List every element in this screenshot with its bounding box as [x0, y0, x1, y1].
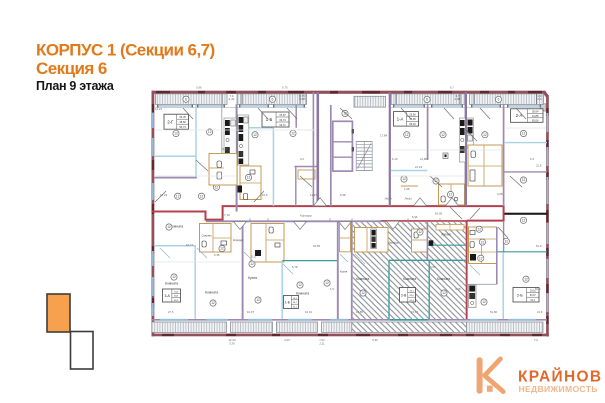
svg-text:Комната: Комната: [296, 292, 309, 296]
svg-text:Комната: Комната: [205, 291, 218, 295]
svg-text:1,98: 1,98: [404, 187, 410, 191]
svg-text:12: 12: [247, 176, 251, 180]
svg-text:12: 12: [482, 300, 486, 304]
svg-text:12: 12: [253, 133, 257, 137]
svg-text:12: 12: [441, 133, 445, 137]
svg-text:12: 12: [172, 275, 176, 279]
svg-text:12,23: 12,23: [155, 107, 162, 111]
svg-text:30,64: 30,64: [532, 109, 539, 113]
svg-text:5,96: 5,96: [412, 215, 418, 219]
svg-text:12: 12: [361, 291, 365, 295]
svg-text:12: 12: [402, 177, 406, 181]
svg-text:Кухня: Кухня: [442, 233, 451, 237]
svg-text:4,08: 4,08: [497, 192, 503, 196]
svg-text:2,41: 2,41: [229, 97, 235, 101]
svg-text:Комната: Комната: [356, 277, 369, 281]
svg-text:Лифт: Лифт: [385, 197, 393, 201]
svg-text:Лифт: Лифт: [405, 197, 413, 201]
svg-text:НЕДВИЖИМОСТЬ: НЕДВИЖИМОСТЬ: [519, 384, 598, 394]
svg-text:6,75: 6,75: [282, 86, 288, 90]
svg-text:52,9: 52,9: [535, 287, 541, 291]
svg-text:12: 12: [418, 230, 422, 234]
svg-text:12: 12: [250, 262, 254, 266]
svg-text:3,21: 3,21: [251, 255, 257, 259]
svg-text:15,41: 15,41: [411, 310, 418, 314]
svg-text:51,80: 51,80: [490, 310, 497, 314]
svg-text:Секция 6: Секция 6: [36, 59, 107, 78]
svg-text:6,10: 6,10: [392, 157, 398, 161]
svg-text:0,98: 0,98: [455, 97, 461, 101]
svg-text:12: 12: [200, 194, 204, 198]
svg-text:21,6: 21,6: [536, 164, 542, 168]
svg-text:1,5: 1,5: [330, 287, 334, 291]
svg-text:12: 12: [481, 240, 485, 244]
svg-text:12,23: 12,23: [160, 193, 167, 197]
svg-text:5,3: 5,3: [530, 157, 534, 161]
svg-text:27,5: 27,5: [168, 310, 174, 314]
svg-text:63,09: 63,09: [435, 212, 442, 216]
svg-text:11,97: 11,97: [310, 193, 317, 197]
svg-text:6,36: 6,36: [372, 338, 378, 342]
svg-text:33,74: 33,74: [279, 118, 286, 122]
svg-text:12: 12: [298, 283, 302, 287]
svg-text:2,4: 2,4: [537, 97, 541, 101]
svg-text:Санузел: Санузел: [202, 234, 213, 238]
svg-text:12: 12: [522, 132, 526, 136]
svg-text:5,96: 5,96: [196, 86, 202, 90]
svg-text:12,88: 12,88: [420, 157, 427, 161]
svg-text:12: 12: [405, 133, 409, 137]
svg-text:Кухня: Кухня: [248, 276, 257, 280]
svg-text:3,2: 3,2: [300, 157, 304, 161]
svg-text:6: 6: [426, 98, 428, 102]
svg-text:1-А: 1-А: [397, 116, 404, 121]
svg-text:КОРПУС 1 (Секции 6,7): КОРПУС 1 (Секции 6,7): [36, 41, 215, 60]
svg-text:16,77: 16,77: [186, 243, 193, 247]
svg-text:4,18: 4,18: [455, 287, 461, 291]
svg-text:12: 12: [524, 277, 528, 281]
svg-text:7,19: 7,19: [224, 213, 230, 217]
svg-text:7,0: 7,0: [534, 338, 538, 342]
svg-text:12: 12: [449, 193, 453, 197]
svg-text:61,85: 61,85: [532, 114, 539, 118]
svg-text:21,6: 21,6: [537, 310, 543, 314]
svg-text:Комната: Комната: [437, 277, 450, 281]
svg-text:6,7: 6,7: [450, 86, 454, 90]
svg-text:Комната: Комната: [403, 277, 416, 281]
svg-text:3,76: 3,76: [229, 342, 235, 346]
svg-text:5,05: 5,05: [430, 265, 436, 269]
svg-text:61,4: 61,4: [531, 300, 536, 302]
svg-text:0,98: 0,98: [299, 97, 305, 101]
svg-text:5,36: 5,36: [214, 253, 220, 257]
svg-text:12: 12: [291, 132, 295, 136]
svg-text:50,73: 50,73: [179, 125, 186, 129]
svg-text:3,03: 3,03: [284, 338, 290, 342]
svg-text:12: 12: [174, 132, 178, 136]
svg-text:9,30: 9,30: [222, 147, 228, 151]
svg-text:60,07: 60,07: [530, 295, 536, 297]
svg-text:1-Б: 1-Б: [285, 301, 290, 305]
svg-text:12: 12: [483, 133, 487, 137]
svg-text:12: 12: [256, 298, 260, 302]
svg-text:10,85: 10,85: [356, 310, 363, 314]
svg-text:35,10: 35,10: [409, 122, 416, 126]
svg-text:12: 12: [211, 301, 215, 305]
svg-text:12: 12: [167, 225, 171, 229]
svg-text:12: 12: [208, 130, 212, 134]
svg-text:3-А: 3-А: [165, 294, 171, 298]
svg-text:6: 6: [498, 98, 500, 102]
svg-text:12: 12: [505, 240, 509, 244]
svg-text:2-Г: 2-Г: [167, 119, 174, 124]
svg-text:16,31: 16,31: [305, 310, 312, 314]
svg-text:2-Б: 2-Б: [517, 293, 523, 297]
svg-text:15,9: 15,9: [262, 193, 268, 197]
svg-text:2-В: 2-В: [401, 293, 407, 297]
svg-text:12: 12: [522, 219, 526, 223]
svg-text:12: 12: [176, 194, 180, 198]
svg-text:21,19: 21,19: [415, 165, 422, 169]
svg-text:6: 6: [185, 97, 187, 101]
svg-text:12: 12: [477, 227, 481, 231]
svg-text:Кухня: Кухня: [340, 270, 348, 274]
svg-text:34,71: 34,71: [279, 123, 286, 127]
svg-text:5,78: 5,78: [292, 265, 298, 269]
svg-text:Коридор: Коридор: [300, 214, 312, 218]
svg-text:63,06: 63,06: [532, 118, 539, 122]
svg-text:12: 12: [325, 281, 329, 285]
svg-text:8,98: 8,98: [340, 193, 346, 197]
svg-text:16,07: 16,07: [247, 310, 254, 314]
svg-text:Коридор: Коридор: [233, 238, 244, 242]
svg-text:КРАЙНОВ: КРАЙНОВ: [518, 368, 602, 386]
svg-text:2,11: 2,11: [319, 342, 325, 346]
svg-text:План 9 этажа: План 9 этажа: [36, 79, 115, 93]
svg-text:12: 12: [522, 178, 526, 182]
svg-text:12: 12: [442, 291, 446, 295]
svg-text:19,56: 19,56: [409, 112, 416, 116]
svg-text:6: 6: [272, 97, 274, 101]
svg-text:12: 12: [479, 256, 483, 260]
svg-text:18,85: 18,85: [313, 244, 320, 248]
svg-text:12: 12: [220, 247, 224, 251]
svg-text:51,9: 51,9: [536, 244, 542, 248]
svg-text:15,97: 15,97: [279, 113, 286, 117]
svg-text:17,84: 17,84: [380, 134, 387, 138]
svg-text:Коридор: Коридор: [388, 241, 399, 245]
svg-text:Комната: Комната: [165, 282, 178, 286]
svg-text:48,82: 48,82: [179, 120, 186, 124]
svg-text:12: 12: [215, 186, 219, 190]
svg-text:25,36: 25,36: [179, 115, 186, 119]
